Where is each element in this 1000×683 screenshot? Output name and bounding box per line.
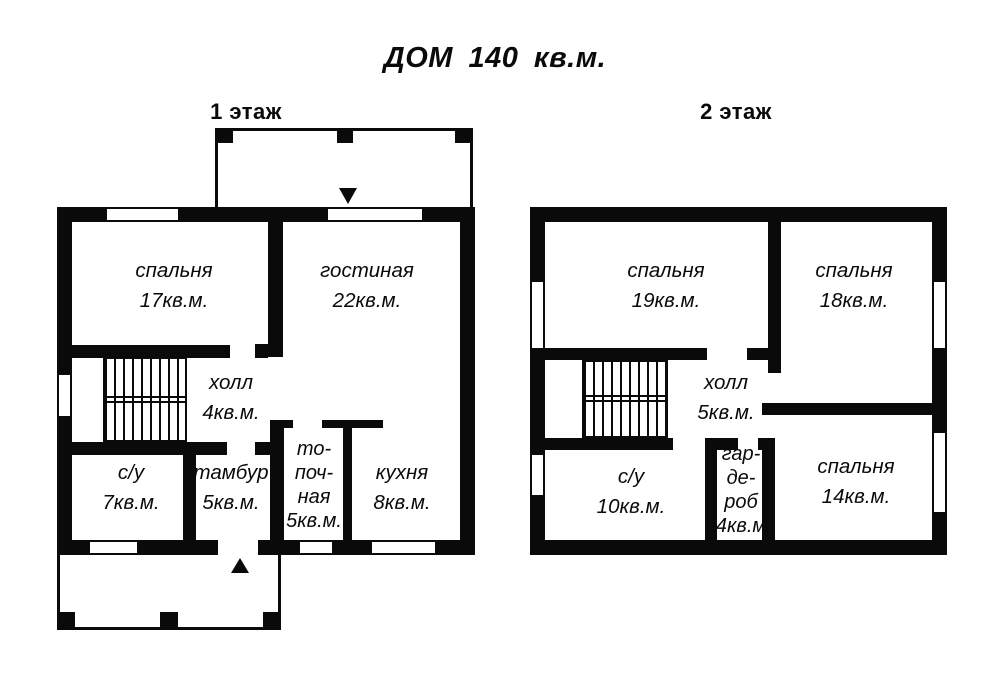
wall-vestibule-boiler [270, 420, 284, 540]
floor2-label: 2 этаж [666, 99, 806, 125]
room-label-bedroom-19: спальня 19кв.м. [586, 256, 746, 316]
room-name: то- [284, 437, 344, 461]
window-stair-left [59, 375, 70, 416]
room-label-bedroom-14: спальня 14кв.м. [774, 452, 938, 512]
room-label-hall-5: холл 5кв.м. [676, 368, 776, 428]
room-name: кухня [349, 458, 455, 488]
room-label-wardrobe-4: гар- де- роб 4кв.м [710, 442, 772, 538]
wall-right [460, 207, 475, 555]
balcony-post [337, 128, 353, 143]
wall-bedroom18-bedroom14 [762, 403, 933, 415]
wall-hall-bathroom [530, 438, 673, 450]
wall-bottom [530, 540, 947, 555]
front-door-opening [218, 540, 258, 555]
plan-title: ДОМ 140 кв.м. [330, 42, 660, 75]
room-area: 8кв.м. [349, 488, 455, 518]
window-living-balcony-door [328, 209, 422, 220]
room-label-bathroom-7: с/у 7кв.м. [79, 458, 183, 518]
wall-stub [255, 344, 268, 358]
porch-post [57, 612, 75, 630]
room-area: 17кв.м. [94, 286, 254, 316]
room-area: 4кв.м. [175, 398, 287, 428]
room-area: 22кв.м. [285, 286, 449, 316]
window-bathroom [90, 542, 137, 553]
window-bedroom [107, 209, 178, 220]
room-label-hall-4: холл 4кв.м. [175, 368, 287, 428]
room-name: тамбур [190, 458, 272, 488]
wall-bedroom-living [268, 207, 283, 357]
floor-plan-canvas: ДОМ 140 кв.м. 1 этаж 2 этаж [0, 0, 1000, 683]
room-name: спальня [94, 256, 254, 286]
room-label-boiler-5: то- поч- ная 5кв.м. [284, 437, 344, 533]
room-name: спальня [772, 256, 936, 286]
room-label-living-22: гостиная 22кв.м. [285, 256, 449, 316]
room-area: 7кв.м. [79, 488, 183, 518]
room-name: холл [175, 368, 287, 398]
balcony-entrance-arrow-icon [339, 188, 357, 204]
room-area: 5кв.м. [284, 509, 344, 533]
room-area: 5кв.м. [676, 398, 776, 428]
room-area: 4кв.м [710, 514, 772, 538]
room-name: поч- [284, 461, 344, 485]
room-name: спальня [586, 256, 746, 286]
window-bathroom [532, 455, 543, 495]
wall-top [530, 207, 947, 222]
window-boiler [300, 542, 332, 553]
balcony-post [455, 128, 473, 143]
room-area: 19кв.м. [586, 286, 746, 316]
room-name: с/у [579, 462, 683, 492]
room-area: 14кв.м. [774, 482, 938, 512]
balcony-post [215, 128, 233, 143]
wall-kitchen-top [322, 420, 383, 428]
entrance-arrow-icon [231, 558, 249, 573]
wall-hall-bathroom [57, 442, 227, 455]
room-label-bathroom-10: с/у 10кв.м. [579, 462, 683, 522]
room-area: 10кв.м. [579, 492, 683, 522]
room-label-kitchen-8: кухня 8кв.м. [349, 458, 455, 518]
room-label-vestibule-5: тамбур 5кв.м. [190, 458, 272, 518]
window-kitchen [372, 542, 435, 553]
room-name: спальня [774, 452, 938, 482]
wall-left [530, 207, 545, 555]
room-label-bedroom-17: спальня 17кв.м. [94, 256, 254, 316]
window-bedroom19 [532, 282, 543, 348]
room-label-bedroom-18: спальня 18кв.м. [772, 256, 936, 316]
wall-stub [747, 348, 781, 360]
room-name: с/у [79, 458, 183, 488]
staircase-floor2 [582, 360, 668, 438]
porch-post [263, 612, 281, 630]
wall-bedroom19-hall [530, 348, 707, 360]
room-name: де- [710, 466, 772, 490]
floor1-label: 1 этаж [176, 99, 316, 125]
room-name: роб [710, 490, 772, 514]
room-area: 18кв.м. [772, 286, 936, 316]
room-name: гостиная [285, 256, 449, 286]
room-name: гар- [710, 442, 772, 466]
room-name: холл [676, 368, 776, 398]
room-area: 5кв.м. [190, 488, 272, 518]
room-name: ная [284, 485, 344, 509]
porch-post [160, 612, 178, 630]
